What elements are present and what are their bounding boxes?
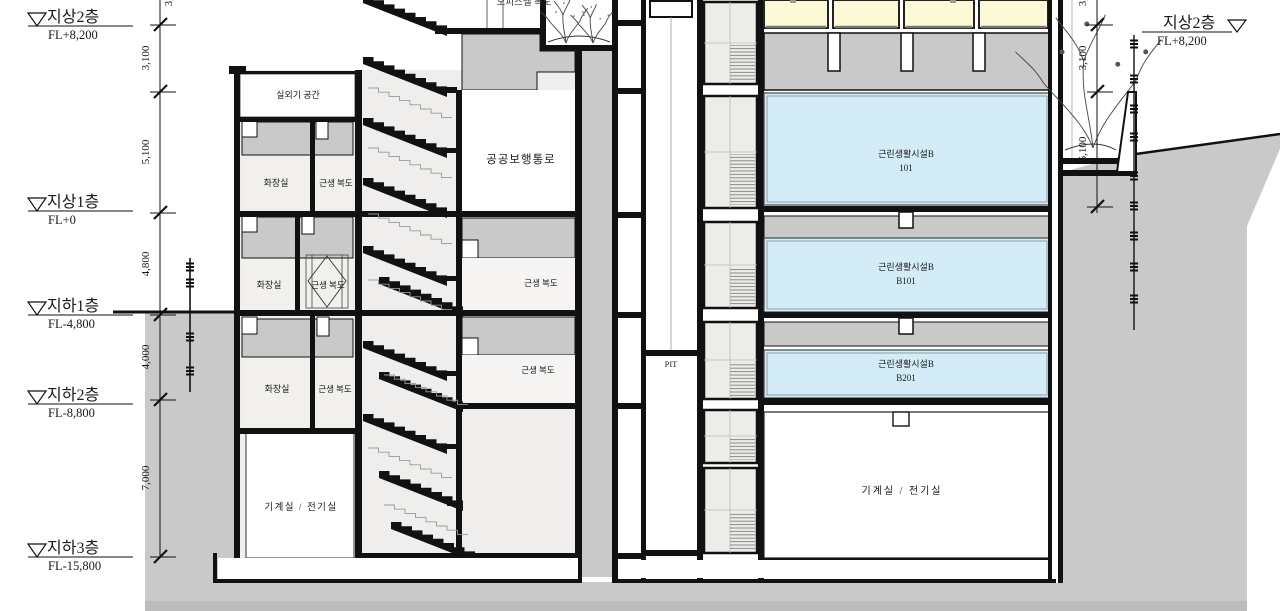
room-label-facility: 근린생활시설B	[878, 358, 934, 369]
room-label-corridor: 근생 복도	[311, 280, 345, 290]
room-label-public-walkway: 공공보행통로	[486, 153, 555, 166]
level-name: 지상1층	[47, 193, 99, 211]
level-name: 지하1층	[47, 297, 99, 315]
level-elevation: FL-15,800	[48, 559, 101, 573]
room-label-machine-room: 기계실 / 전기실	[862, 485, 943, 497]
level-elevation: FL+8,200	[1157, 34, 1207, 48]
room-label-toilet: 화장실	[264, 178, 289, 188]
room-label-facility: 근린생활시설B	[878, 261, 934, 272]
left-building	[215, 0, 582, 583]
room-label-toilet: 화장실	[265, 384, 290, 394]
room-label-facility-unit: 101	[899, 163, 913, 173]
dim-label: 7,000	[140, 465, 152, 490]
room-label-officetel-corridor: 오피스텔 복도	[497, 0, 552, 8]
room-label-machine-room: 기계실 / 전기실	[264, 501, 337, 513]
dim-label: 5,100	[1077, 136, 1089, 161]
level-elevation: FL+8,200	[48, 28, 98, 42]
upper-rooms	[764, 0, 1048, 28]
dim-label: 5,100	[140, 139, 152, 164]
dim-label: 3,100	[1077, 45, 1089, 70]
building-section-svg: 3,100 5,100 4,800 4,000 7,000 3,100 3,10…	[0, 0, 1280, 611]
dim-label: 3,100	[140, 45, 152, 70]
section-drawing: 3,100 5,100 4,800 4,000 7,000 3,100 3,10…	[0, 0, 1280, 611]
level-name: 지하2층	[47, 386, 99, 404]
room-label-facility-unit: B201	[896, 373, 916, 383]
level-name: 지상2층	[1163, 14, 1215, 32]
room-label-corridor: 근생 복도	[319, 178, 353, 188]
room-label-facility-unit: B101	[896, 276, 916, 286]
room-label-corridor: 근생 복도	[524, 278, 558, 288]
room-label-outdoor-unit: 실외기 공간	[276, 89, 320, 100]
dim-label-partial: 3,100	[1077, 0, 1089, 6]
building-joint	[582, 51, 612, 577]
public-walkway-room	[462, 90, 575, 212]
level-name: 지하3층	[47, 539, 99, 557]
dim-label-partial: 3,100	[163, 0, 175, 6]
level-elevation: FL-8,800	[48, 406, 95, 420]
room-label-toilet: 화장실	[257, 280, 282, 290]
level-elevation: FL+0	[48, 213, 76, 227]
machine-room-left	[246, 432, 354, 558]
room-label-pit: PIT	[665, 359, 679, 369]
room-label-facility: 근린생활시설B	[878, 148, 934, 159]
room-label-corridor: 근생 복도	[521, 365, 555, 375]
level-elevation: FL-4,800	[48, 317, 95, 331]
planter-top	[540, 0, 618, 51]
level-name: 지상2층	[47, 8, 99, 26]
dim-label: 4,800	[140, 251, 152, 276]
dim-label: 4,000	[140, 344, 152, 369]
room-label-corridor: 근생 복도	[318, 384, 352, 394]
